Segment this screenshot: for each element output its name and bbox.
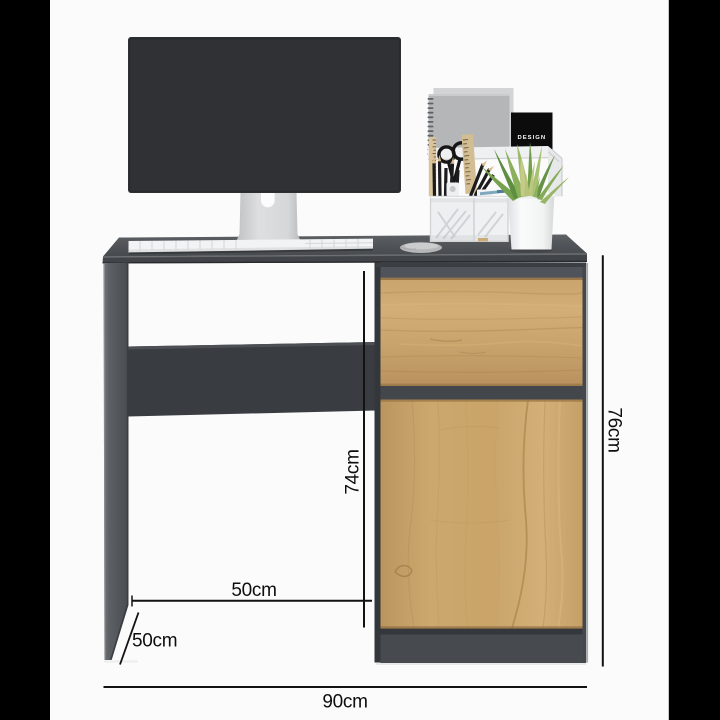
svg-text:90cm: 90cm <box>322 692 367 713</box>
svg-text:74cm: 74cm <box>343 449 364 494</box>
svg-text:50cm: 50cm <box>231 580 276 601</box>
svg-text:50cm: 50cm <box>132 631 177 652</box>
svg-text:76cm: 76cm <box>604 407 625 452</box>
svg-text:DESIGN: DESIGN <box>518 135 547 141</box>
